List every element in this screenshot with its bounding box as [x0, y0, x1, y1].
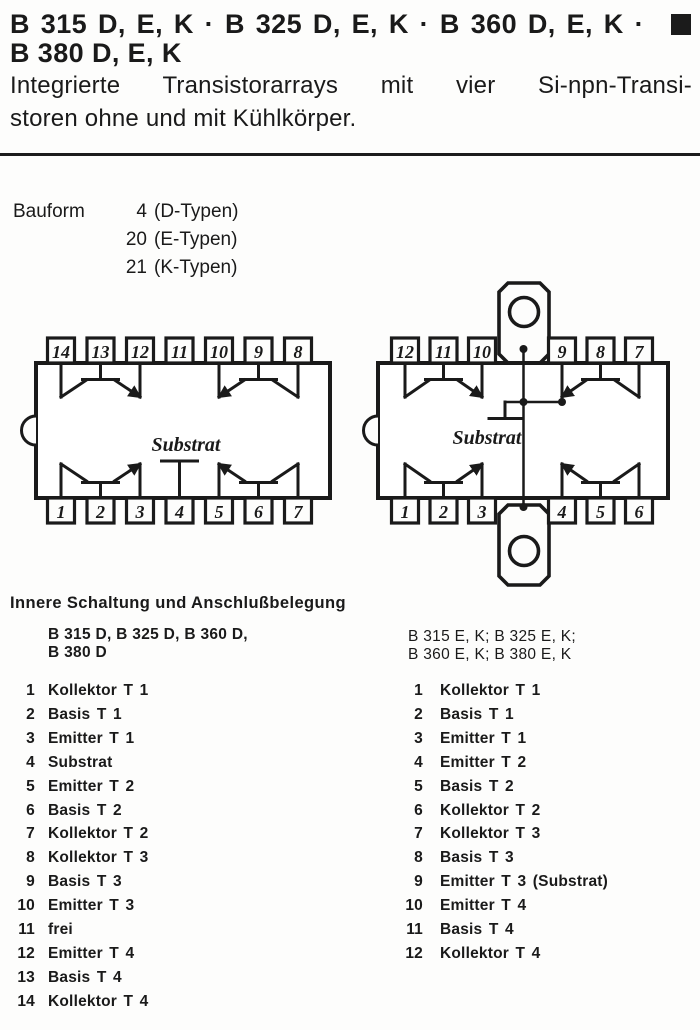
- svg-text:2: 2: [438, 502, 448, 522]
- pin-row: 7Kollektor T 3: [395, 822, 695, 846]
- pin-row: 5Emitter T 2: [10, 775, 355, 799]
- pin-row: 11frei: [10, 918, 355, 942]
- svg-text:13: 13: [92, 342, 110, 362]
- pin-row: 5Basis T 2: [395, 775, 695, 799]
- pin-row: 3Emitter T 1: [395, 727, 695, 751]
- pin1-notch: [21, 416, 36, 445]
- bauform-entry: 4 (D-Typen): [117, 198, 238, 226]
- right-package-diagram: Substrat: [364, 283, 669, 585]
- pinout-left-header: B 315 D, B 325 D, B 360 D, B 380 D: [48, 626, 355, 661]
- pin-row: 8Kollektor T 3: [10, 846, 355, 870]
- svg-text:9: 9: [558, 342, 567, 362]
- divider-rule: [0, 153, 700, 156]
- pin-row: 3Emitter T 1: [10, 727, 355, 751]
- pin-boxes-top: 14 13 12 11 10 9 8: [48, 338, 312, 363]
- pin-row: 4Emitter T 2: [395, 751, 695, 775]
- pin1-notch: [364, 416, 379, 445]
- subtitle-line-2: storen ohne und mit Kühlkörper.: [10, 105, 356, 133]
- pinout-left-rows: 1Kollektor T 1 2Basis T 1 3Emitter T 1 4…: [10, 679, 355, 1014]
- svg-text:5: 5: [215, 502, 224, 522]
- svg-text:8: 8: [294, 342, 303, 362]
- svg-text:4: 4: [557, 502, 567, 522]
- substrate-label: Substrat: [152, 434, 222, 456]
- subtitle-line-1: Integrierte Transistorarrays mit vier Si…: [10, 72, 692, 100]
- pin-row: 2Basis T 1: [395, 703, 695, 727]
- svg-text:1: 1: [401, 502, 410, 522]
- svg-text:1: 1: [57, 502, 66, 522]
- pin-row: 13Basis T 4: [10, 966, 355, 990]
- pin-row: 2Basis T 1: [10, 703, 355, 727]
- pin-row: 9Basis T 3: [10, 870, 355, 894]
- svg-text:6: 6: [254, 502, 263, 522]
- datasheet-page: B 315 D, E, K · B 325 D, E, K · B 360 D,…: [0, 0, 700, 1030]
- left-package-diagram: Substrat 14 13 12 11 10 9 8: [21, 338, 330, 523]
- svg-text:11: 11: [435, 342, 452, 362]
- package-diagrams: Substrat 14 13 12 11 10 9 8: [0, 270, 700, 590]
- svg-text:3: 3: [135, 502, 145, 522]
- substrate-label: Substrat: [453, 427, 523, 449]
- corner-square-marker: [671, 14, 691, 35]
- svg-text:11: 11: [171, 342, 188, 362]
- pin-row: 4Substrat: [10, 751, 355, 775]
- pin-row: 14Kollektor T 4: [10, 990, 355, 1014]
- pin-row: 1Kollektor T 1: [395, 679, 695, 703]
- pin-row: 12Emitter T 4: [10, 942, 355, 966]
- pin-row: 6Kollektor T 2: [395, 799, 695, 823]
- pin-row: 9Emitter T 3 (Substrat): [395, 870, 695, 894]
- pinout-right-header: B 315 E, K; B 325 E, K; B 360 E, K; B 38…: [408, 628, 695, 663]
- section-heading: Innere Schaltung und Anschlußbelegung: [10, 594, 346, 613]
- svg-text:8: 8: [596, 342, 605, 362]
- svg-text:7: 7: [294, 502, 304, 522]
- svg-text:6: 6: [635, 502, 644, 522]
- mounting-tab-bottom: [499, 505, 549, 585]
- pin-row: 6Basis T 2: [10, 799, 355, 823]
- svg-text:14: 14: [52, 342, 70, 362]
- svg-text:12: 12: [396, 342, 414, 362]
- pin-row: 10Emitter T 4: [395, 894, 695, 918]
- svg-text:10: 10: [210, 342, 228, 362]
- pinout-left-column: B 315 D, B 325 D, B 360 D, B 380 D 1Koll…: [10, 626, 355, 1014]
- svg-text:2: 2: [95, 502, 105, 522]
- pin-boxes-bottom: 1 2 3 4 5 6 7: [48, 498, 312, 523]
- svg-text:5: 5: [596, 502, 605, 522]
- svg-text:10: 10: [473, 342, 491, 362]
- svg-text:9: 9: [254, 342, 263, 362]
- pin-row: 10Emitter T 3: [10, 894, 355, 918]
- pin-row: 7Kollektor T 2: [10, 822, 355, 846]
- pin-row: 8Basis T 3: [395, 846, 695, 870]
- bauform-entry: 20 (E-Typen): [117, 226, 238, 254]
- svg-text:4: 4: [174, 502, 184, 522]
- pin-row: 11Basis T 4: [395, 918, 695, 942]
- title-line-2: B 380 D, E, K: [10, 38, 182, 69]
- title-line-1: B 315 D, E, K · B 325 D, E, K · B 360 D,…: [10, 9, 644, 40]
- pin-row: 12Kollektor T 4: [395, 942, 695, 966]
- pin-row: 1Kollektor T 1: [10, 679, 355, 703]
- pinout-right-column: B 315 E, K; B 325 E, K; B 360 E, K; B 38…: [395, 628, 695, 966]
- pinout-right-rows: 1Kollektor T 1 2Basis T 1 3Emitter T 1 4…: [395, 679, 695, 966]
- svg-text:12: 12: [131, 342, 149, 362]
- svg-text:7: 7: [635, 342, 645, 362]
- svg-text:3: 3: [477, 502, 487, 522]
